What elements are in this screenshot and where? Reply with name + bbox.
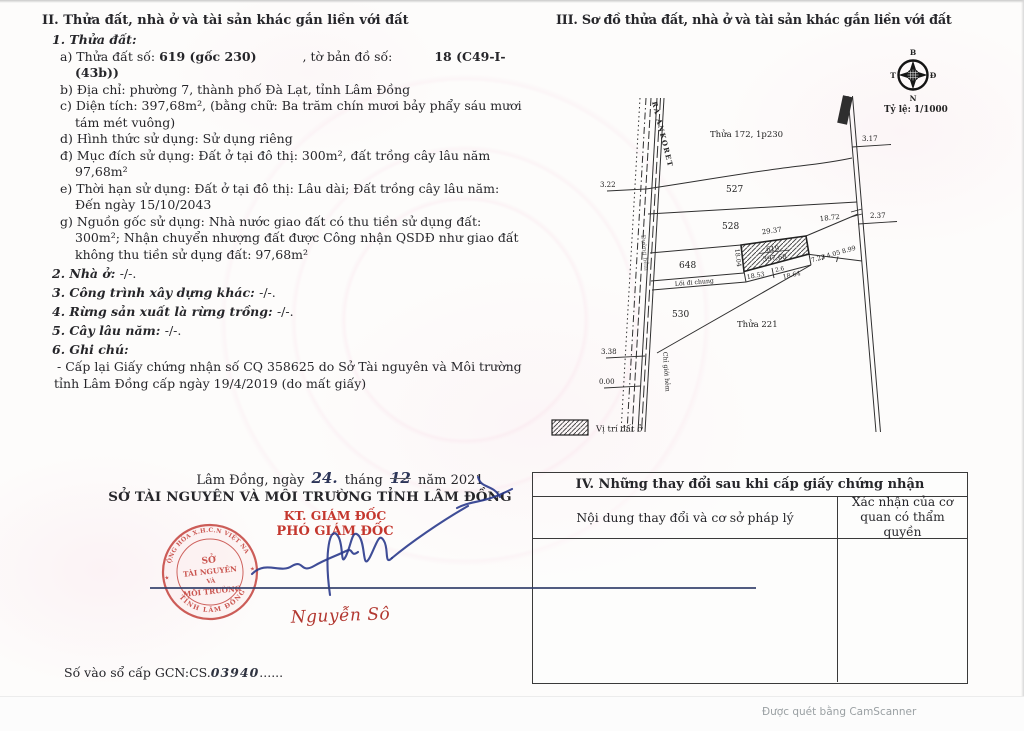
camscanner-bar: Được quét bằng CamScanner — [0, 696, 1024, 731]
line-address: b) Địa chỉ: phường 7, thành phố Đà Lạt, … — [42, 82, 522, 99]
parcel-221-label: Thửa 221 — [737, 319, 778, 330]
dim-338: 3.38 — [601, 348, 617, 356]
parcel-number-label: a) Thửa đất số: — [60, 49, 155, 64]
parcel-530-label: 530 — [672, 310, 689, 320]
table-4-col1-header: Nội dung thay đổi và cơ sở pháp lý — [533, 497, 838, 538]
item-4-label: 4. Rừng sản xuất là rừng trồng: — [52, 304, 273, 319]
dim-000: 0.00 — [599, 378, 615, 386]
line-use-purpose: đ) Mục đích sử dụng: Đất ở tại đô thị: 3… — [42, 148, 522, 181]
parcel-527-label: 527 — [726, 185, 743, 195]
parcel-648-label: 648 — [679, 261, 696, 271]
item-2-label: 2. Nhà ở: — [52, 266, 115, 281]
dim-right-top: 18.72 — [819, 213, 840, 223]
line-parcel-number: a) Thửa đất số: 619 (gốc 230), tờ bản đồ… — [42, 49, 522, 82]
table-4-body-col2 — [838, 539, 967, 682]
compass-east-label: Đ — [930, 71, 937, 80]
scan-fold-line — [150, 587, 756, 589]
table-4-col2-header: Xác nhận của cơ quan có thẩm quyền — [838, 497, 967, 538]
gcn-label: Số vào sổ cấp GCN:CS. — [64, 665, 211, 680]
legend-hatch-swatch — [552, 420, 588, 435]
table-4-title: IV. Những thay đổi sau khi cấp giấy chứn… — [533, 473, 967, 497]
left-road-side-label: Đường hẻm — [639, 234, 650, 271]
line-area: c) Diện tích: 397,68m², (bằng chữ: Ba tr… — [42, 98, 522, 131]
legend-label: Vị trí đất ở — [595, 424, 643, 435]
dim-slope-segments: 7.23 4.05 8.99 — [810, 245, 856, 264]
legend-residential-location: Vị trí đất ở — [552, 420, 643, 435]
line-use-form: d) Hình thức sử dụng: Sử dụng riêng — [42, 131, 522, 148]
compass-rose-icon: B Đ N T — [890, 48, 937, 103]
alley-boundary-label: Chỉ giới hẻm — [661, 352, 671, 392]
stamp-star-left: ★ — [164, 574, 170, 581]
dim-317: 3.17 — [862, 135, 878, 143]
parcel-619-number: 619 — [766, 244, 780, 254]
item-4-value: -/-. — [277, 304, 294, 319]
table-4-empty-body — [533, 539, 967, 682]
stamp-line-va: VÀ — [205, 577, 216, 585]
parcel-619-area: 397,68 — [762, 253, 787, 264]
compass-north-label: B — [910, 48, 916, 57]
item-5-value: -/-. — [165, 323, 182, 338]
line-use-term: e) Thời hạn sử dụng: Đất ở tại đô thị: L… — [42, 181, 522, 214]
land-certificate-page: II. Thửa đất, nhà ở và tài sản khác gắn … — [0, 0, 1024, 731]
section-parcel-info: II. Thửa đất, nhà ở và tài sản khác gắn … — [42, 12, 522, 392]
dim-237: 2.37 — [870, 212, 886, 220]
table-4-header-row: Nội dung thay đổi và cơ sở pháp lý Xác n… — [533, 497, 967, 539]
section-2-heading: II. Thửa đất, nhà ở và tài sản khác gắn … — [42, 12, 522, 29]
item-2-value: -/-. — [120, 266, 137, 281]
dim-left: 18.04 — [733, 248, 742, 267]
dim-322: 3.22 — [600, 181, 616, 189]
item-5-label: 5. Cây lâu năm: — [52, 323, 160, 338]
table-4-body-col1 — [533, 539, 838, 682]
certificate-register-number-line: Số vào sổ cấp GCN:CS.03940...... — [64, 665, 283, 680]
changes-after-issue-table: IV. Những thay đổi sau khi cấp giấy chứn… — [532, 472, 968, 684]
item-5-perennial: 5. Cây lâu năm: -/-. — [42, 323, 522, 340]
item-6-notes-title: 6. Ghi chú: — [42, 342, 522, 359]
gcn-dots: ...... — [259, 665, 283, 680]
camscanner-watermark: Được quét bằng CamScanner — [762, 706, 916, 718]
compass-west-label: T — [890, 71, 896, 80]
item-3-label: 3. Công trình xây dựng khác: — [52, 285, 255, 300]
dim-bottom-left: 18.53 — [746, 271, 765, 281]
dim-top: 29.37 — [761, 226, 782, 237]
map-scale-label: Tỷ lệ: 1/1000 — [884, 104, 948, 115]
item-4-forest: 4. Rừng sản xuất là rừng trồng: -/-. — [42, 304, 522, 321]
item-3-construction: 3. Công trình xây dựng khác: -/-. — [42, 285, 522, 302]
parcel-172-label: Thửa 172, 1p230 — [710, 129, 783, 140]
boundary-line — [646, 158, 852, 189]
gcn-handwritten-number: 03940 — [211, 665, 260, 680]
item-2-house: 2. Nhà ở: -/-. — [42, 266, 522, 283]
parcel-number-value: 619 (gốc 230) — [159, 49, 256, 64]
map-sheet-label: , tờ bản đồ số: — [303, 49, 393, 64]
item-3-value: -/-. — [259, 285, 276, 300]
section-3-heading: III. Sơ đồ thửa đất, nhà ở và tài sản kh… — [556, 13, 952, 28]
compass-south-label: N — [910, 94, 917, 103]
cadastral-map: B Đ N T Tỷ lệ: 1/1000 RA ANKORET Đường h… — [540, 40, 1010, 440]
line-use-origin: g) Nguồn gốc sử dụng: Nhà nước giao đất … — [42, 214, 522, 264]
parcel-528-label: 528 — [722, 222, 739, 232]
item-6-note-text: - Cấp lại Giấy chứng nhận số CQ 358625 d… — [42, 359, 522, 392]
item-1-title: 1. Thửa đất: — [42, 32, 522, 49]
dim-bottom-mid: 2.6 — [775, 266, 786, 274]
